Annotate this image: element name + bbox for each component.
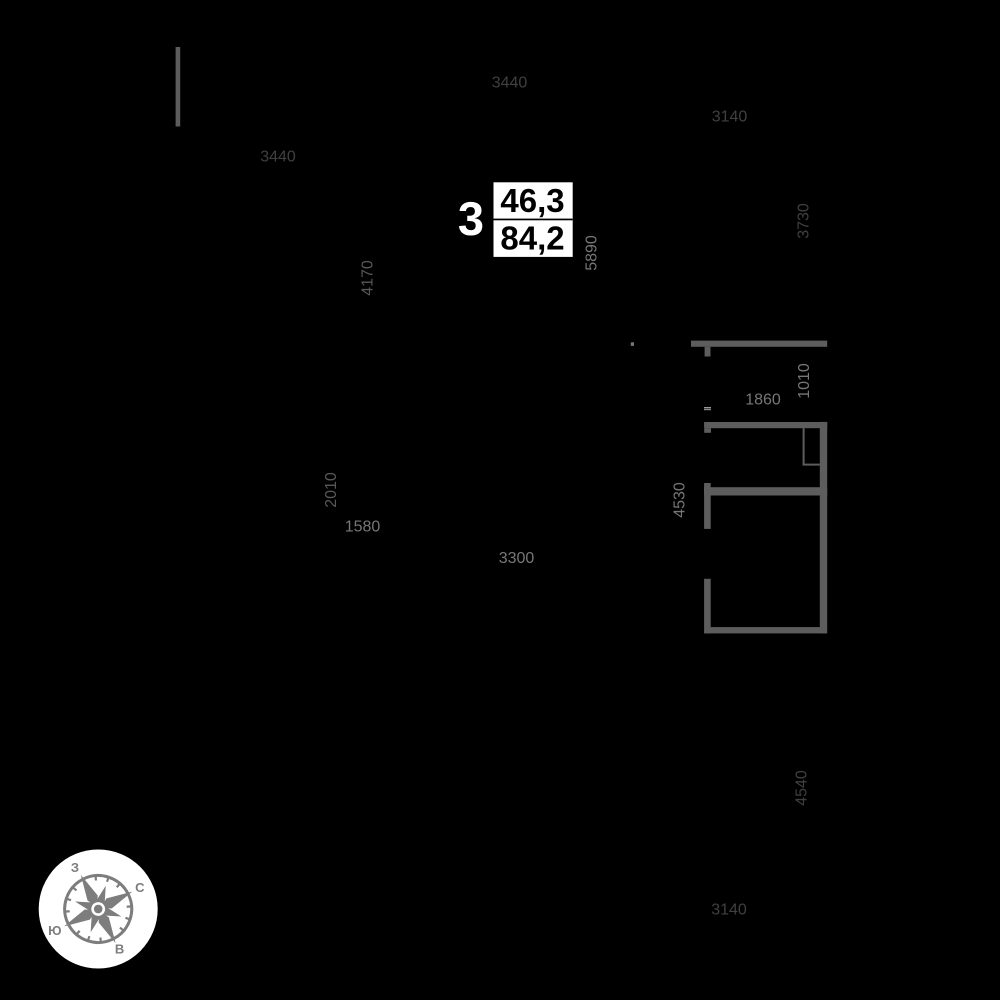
svg-text:3440: 3440 <box>260 149 296 166</box>
svg-text:84,2: 84,2 <box>500 219 564 256</box>
svg-text:3440: 3440 <box>492 75 528 92</box>
svg-text:46,3: 46,3 <box>500 182 564 219</box>
svg-text:2010: 2010 <box>323 472 340 508</box>
svg-text:Ю: Ю <box>48 923 61 938</box>
svg-text:1860: 1860 <box>745 392 781 409</box>
svg-text:4530: 4530 <box>672 482 689 518</box>
svg-text:4540: 4540 <box>794 770 811 806</box>
svg-text:С: С <box>135 880 145 895</box>
svg-text:3300: 3300 <box>499 550 535 567</box>
svg-text:3140: 3140 <box>712 109 748 126</box>
svg-text:1580: 1580 <box>345 519 381 536</box>
svg-text:3730: 3730 <box>796 203 813 239</box>
svg-text:В: В <box>115 942 124 957</box>
svg-text:4170: 4170 <box>360 260 377 296</box>
svg-text:З: З <box>71 860 79 875</box>
svg-text:5890: 5890 <box>584 235 601 271</box>
svg-text:3140: 3140 <box>711 902 747 919</box>
svg-text:1010: 1010 <box>796 363 813 399</box>
svg-text:3: 3 <box>458 192 484 245</box>
